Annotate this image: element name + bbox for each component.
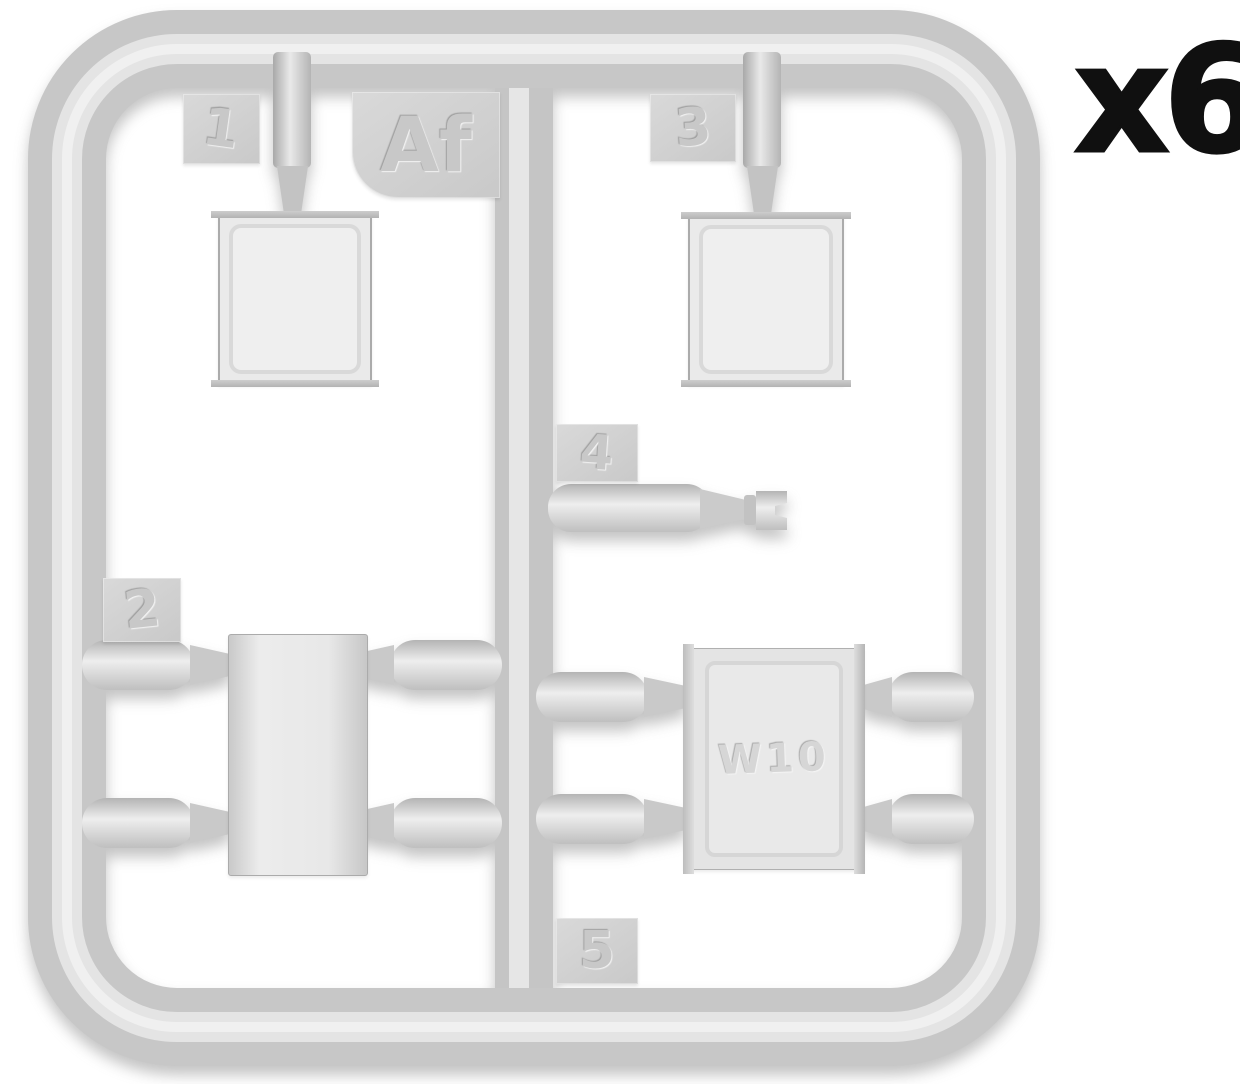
center-runner bbox=[519, 28, 524, 1052]
part-3-gate bbox=[743, 52, 781, 214]
part-tab-5: 5 bbox=[556, 918, 638, 984]
part-number-label-2: 2 bbox=[121, 582, 162, 637]
part-3-panel bbox=[688, 214, 844, 385]
runner-arm-plate-right-top bbox=[860, 672, 974, 722]
part-2-block bbox=[228, 634, 368, 876]
runner-arm-part2-left-top bbox=[82, 640, 230, 690]
w10-plate-left-flange bbox=[683, 644, 694, 874]
runner-arm-part2-right-top bbox=[354, 640, 502, 690]
part-tab-1: 1 bbox=[183, 94, 260, 164]
runner-arm-plate-left-top bbox=[536, 672, 686, 722]
runner-arm-part2-right-bottom bbox=[354, 798, 502, 848]
sprue-diagram: 1 Af 3 4 2 5 W10 x6 bbox=[0, 0, 1240, 1084]
part-number-label-1: 1 bbox=[200, 101, 243, 158]
sprue-letter-tab: Af bbox=[352, 92, 500, 198]
part-3-panel-face bbox=[699, 225, 833, 374]
sprue-letter-label: Af bbox=[380, 107, 472, 183]
runner-arm-plate-left-bottom bbox=[536, 794, 686, 844]
part-number-label-3: 3 bbox=[673, 101, 713, 155]
part-tab-4: 4 bbox=[556, 424, 638, 482]
part-1-panel bbox=[218, 213, 372, 385]
w10-plate: W10 bbox=[684, 648, 864, 870]
w10-plate-face: W10 bbox=[705, 661, 843, 857]
part-number-label-4: 4 bbox=[579, 428, 616, 478]
quantity-label: x6 bbox=[1074, 26, 1240, 174]
part-1-gate bbox=[273, 52, 311, 214]
plate-marking-label: W10 bbox=[717, 737, 830, 781]
part-tab-2: 2 bbox=[103, 578, 181, 642]
runner-arm-plate-right-bottom bbox=[860, 794, 974, 844]
part-tab-3: 3 bbox=[650, 94, 736, 162]
part-4-barrel bbox=[548, 484, 787, 532]
w10-plate-right-flange bbox=[854, 644, 865, 874]
part-number-label-5: 5 bbox=[579, 925, 615, 977]
part-1-panel-face bbox=[229, 224, 361, 374]
runner-arm-part2-left-bottom bbox=[82, 798, 230, 848]
